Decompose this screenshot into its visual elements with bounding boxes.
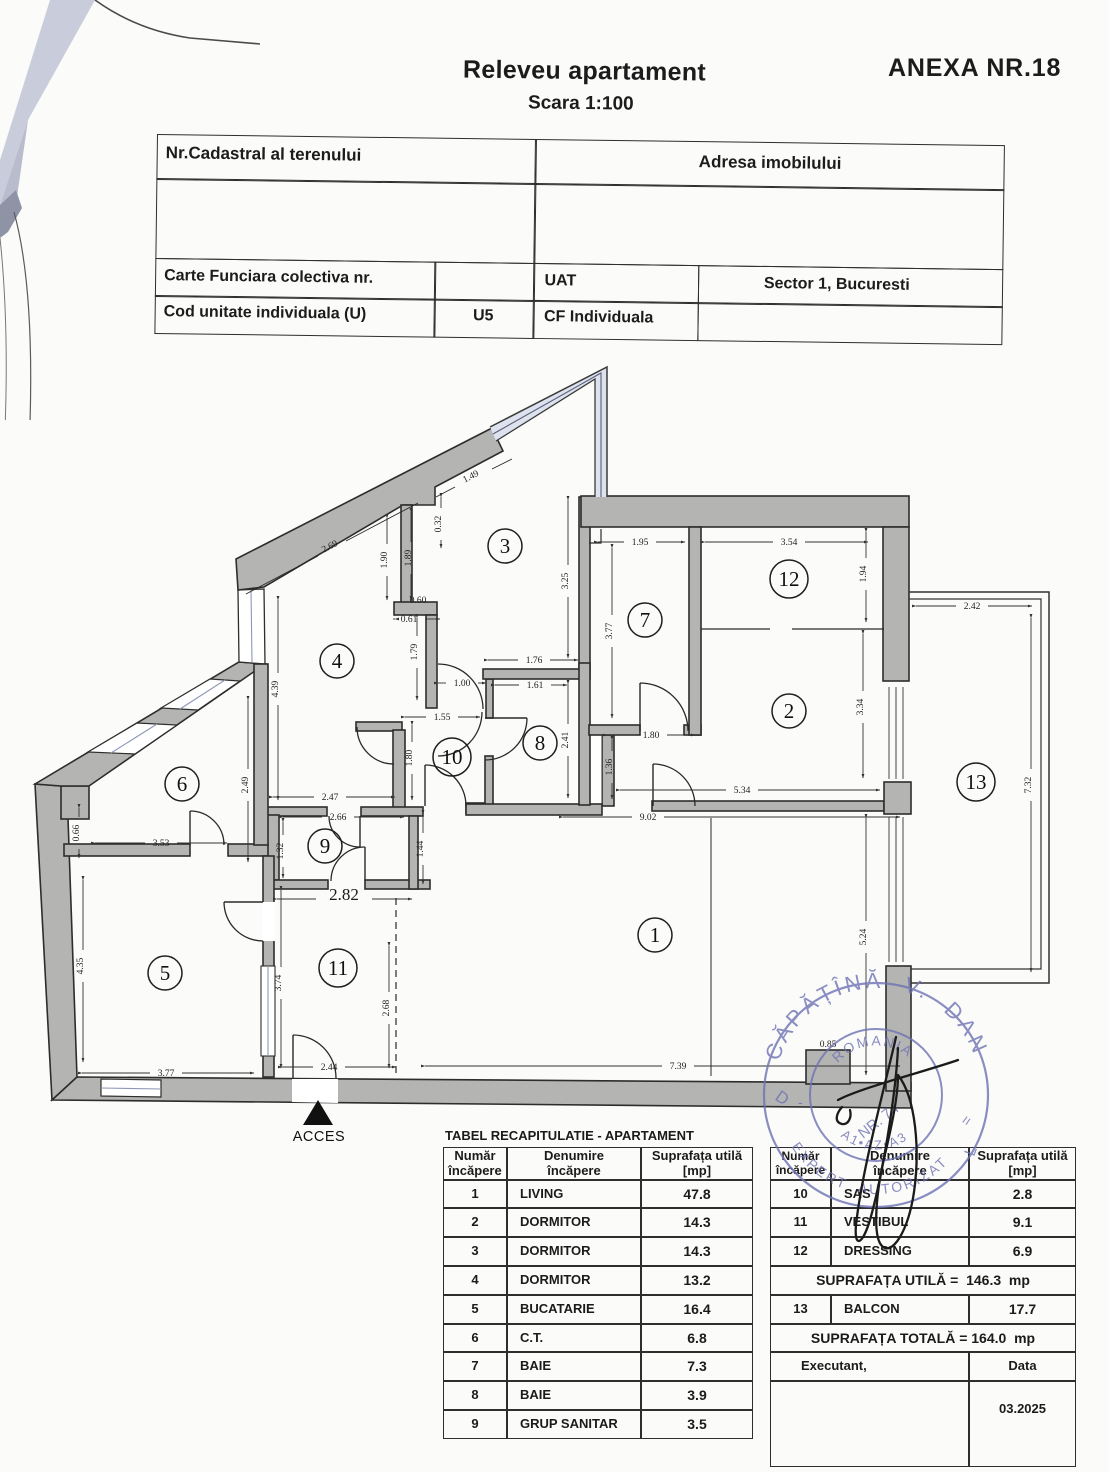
- svg-text:2.47: 2.47: [322, 793, 339, 803]
- svg-text:2.68: 2.68: [382, 999, 392, 1016]
- svg-text:2: 2: [784, 699, 795, 723]
- svg-text:3: 3: [500, 534, 511, 558]
- svg-text:4: 4: [332, 649, 343, 673]
- svg-text:-: -: [798, 1094, 803, 1110]
- svg-text:0.32: 0.32: [434, 515, 444, 532]
- svg-text:0.66: 0.66: [72, 824, 82, 841]
- svg-text:1.61: 1.61: [527, 681, 544, 691]
- svg-text:1.79: 1.79: [410, 643, 420, 660]
- svg-text:4.35: 4.35: [76, 957, 86, 974]
- svg-text:9.02: 9.02: [640, 813, 657, 823]
- svg-text:7.32: 7.32: [1024, 776, 1034, 793]
- svg-text:CĂPĂȚÎNĂ V. DAN: CĂPĂȚÎNĂ V. DAN: [760, 968, 994, 1064]
- svg-text:13: 13: [966, 770, 987, 794]
- svg-text:ROMANIA: ROMANIA: [829, 1032, 917, 1065]
- svg-text:11: 11: [328, 956, 348, 980]
- svg-text:3.54: 3.54: [781, 538, 798, 548]
- svg-text:0.61: 0.61: [401, 615, 418, 625]
- svg-text:7.39: 7.39: [670, 1062, 687, 1072]
- svg-text:12: 12: [779, 567, 800, 591]
- svg-text:2.66: 2.66: [330, 813, 347, 823]
- svg-text:L: L: [962, 1144, 981, 1158]
- svg-text:0.60: 0.60: [410, 596, 427, 606]
- svg-text:2.42: 2.42: [964, 602, 981, 612]
- svg-text:=: =: [957, 1112, 976, 1129]
- svg-text:6: 6: [177, 772, 188, 796]
- svg-text:1: 1: [650, 923, 661, 947]
- svg-text:D: D: [772, 1087, 793, 1110]
- svg-text:1.76: 1.76: [526, 656, 543, 666]
- svg-text:1.00: 1.00: [454, 679, 471, 689]
- svg-text:1.94: 1.94: [859, 565, 869, 582]
- svg-text:5: 5: [160, 961, 171, 985]
- svg-text:1.80: 1.80: [643, 731, 660, 741]
- svg-text:1.95: 1.95: [632, 538, 649, 548]
- svg-text:1.89: 1.89: [404, 549, 414, 566]
- svg-text:10: 10: [442, 745, 463, 769]
- svg-text:2.49: 2.49: [241, 776, 251, 793]
- svg-text:3.53: 3.53: [153, 839, 170, 849]
- svg-text:1.55: 1.55: [434, 713, 451, 723]
- svg-text:1.36: 1.36: [605, 758, 615, 775]
- svg-text:7: 7: [640, 608, 651, 632]
- svg-text:3.74: 3.74: [274, 974, 284, 991]
- svg-text:2.82: 2.82: [329, 885, 359, 904]
- svg-text:5.24: 5.24: [859, 928, 869, 945]
- svg-text:5.34: 5.34: [734, 786, 751, 796]
- svg-text:1.80: 1.80: [405, 749, 415, 766]
- svg-text:2.41: 2.41: [561, 731, 571, 748]
- svg-text:3.77: 3.77: [605, 622, 615, 639]
- svg-text:1.44: 1.44: [416, 840, 426, 857]
- svg-text:8: 8: [535, 731, 546, 755]
- svg-text:3.77: 3.77: [158, 1069, 175, 1079]
- svg-text:1.90: 1.90: [380, 551, 390, 568]
- svg-text:9: 9: [320, 834, 331, 858]
- svg-text:1.32: 1.32: [276, 842, 286, 859]
- svg-text:ACCES: ACCES: [293, 1129, 345, 1145]
- svg-text:3.25: 3.25: [561, 572, 571, 589]
- svg-text:2.44: 2.44: [321, 1063, 338, 1073]
- svg-text:4.39: 4.39: [271, 680, 281, 697]
- svg-text:3.34: 3.34: [856, 698, 866, 715]
